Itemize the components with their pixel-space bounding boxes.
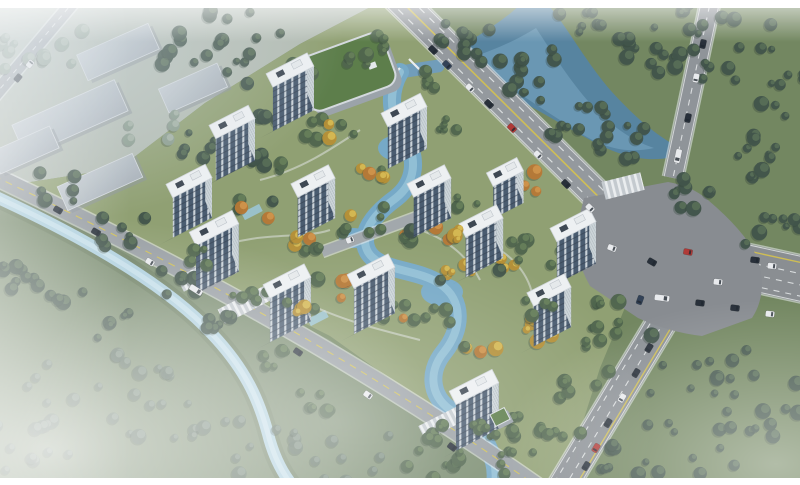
haze-left-band: [0, 8, 130, 478]
rendering-canvas: [0, 8, 800, 478]
haze-overlays: [0, 8, 800, 478]
aerial-site-rendering: [0, 8, 800, 478]
rendering-page: [0, 0, 800, 485]
